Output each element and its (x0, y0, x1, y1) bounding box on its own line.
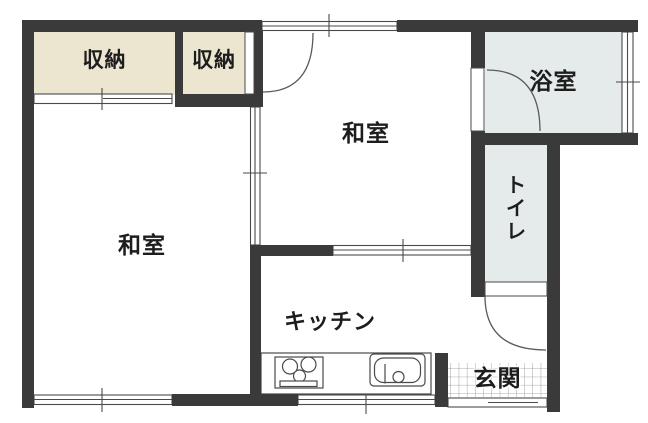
entrance-label: 玄関 (448, 367, 547, 392)
sliding-door-washitsu (243, 107, 267, 245)
toilet-door-arc (485, 296, 546, 350)
kitchen-fixtures (261, 353, 431, 394)
window-bottom-left (34, 388, 172, 412)
closet2-label: 収納 (183, 49, 245, 72)
wall-bottom-middle (172, 394, 298, 406)
sliding-door-kitchen (333, 239, 471, 262)
stove-icon (275, 357, 323, 388)
wall-left (22, 20, 34, 408)
wall-right-lower (547, 143, 560, 412)
window-top (262, 14, 397, 37)
wall-entry-divider (435, 353, 448, 407)
closet1-label: 収納 (34, 49, 175, 72)
sink-icon (370, 354, 425, 386)
bathroom-label: 浴室 (485, 70, 622, 95)
washitsu-top-label: 和室 (266, 122, 466, 147)
floor-plan: 収納 収納 和室 浴室 トイレ 和室 キッチン 玄関 (0, 0, 648, 423)
wall-top-right (397, 20, 638, 32)
washitsu-left-label: 和室 (34, 234, 250, 259)
wall-closet-divider (175, 31, 183, 101)
closet2-door-leaf (245, 32, 254, 94)
toilet-door-leaf (485, 282, 547, 296)
kitchen-label: キッチン (262, 311, 398, 335)
closet2-door-arc (263, 33, 313, 92)
toilet-label: トイレ (504, 174, 528, 243)
wall-under-closet2 (175, 94, 263, 107)
entrance-door (448, 398, 547, 407)
wall-mid-lower (471, 131, 485, 297)
wall-mid-upper (471, 32, 485, 68)
wall-top-left (22, 20, 262, 32)
wall-kitchen-top (250, 245, 333, 256)
wall-washitsu-partition (250, 245, 261, 396)
bathroom-door-leaf (471, 68, 484, 131)
